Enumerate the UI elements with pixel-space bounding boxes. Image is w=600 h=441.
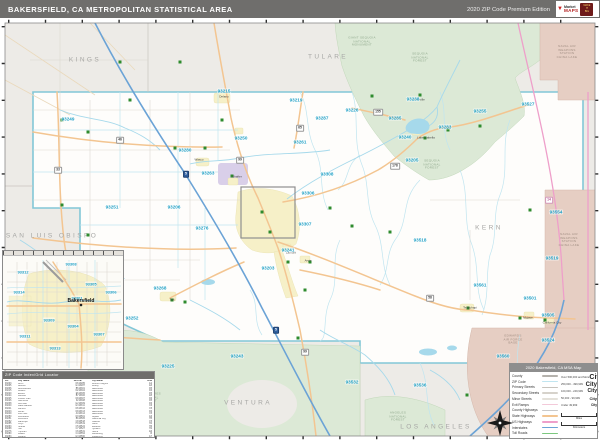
zip-label-93519: 93519 (545, 256, 559, 261)
zip-label-93527: 93527 (521, 102, 535, 107)
county-label-kings: KINGS (69, 57, 101, 64)
town-label-arvin: Arvin (305, 259, 312, 263)
legend-item-label: Primary Streets (512, 385, 542, 389)
area-label-1: SEQUOIA NATIONAL FOREST (411, 53, 428, 64)
miles-scale-label: Miles (561, 417, 597, 420)
zip-label-93249: 93249 (61, 117, 75, 122)
area-label-5: NAVAL AIR WEAPONS STATION CHINA LAKE (557, 45, 578, 59)
route-shield-99: 99 (301, 349, 309, 356)
inset-zip-label-93308: 93308 (65, 262, 77, 267)
town-marker (479, 125, 482, 128)
zip-label-93308: 93308 (320, 172, 334, 177)
scale-bars: Miles Kilometers (561, 411, 597, 430)
zip-index-column-1: ZIPCity NameGrid93203ArvinD693205Bodfish… (5, 380, 79, 438)
town-label-delano: Delano (219, 95, 229, 99)
town-marker (287, 261, 290, 264)
legend-item-swatch (542, 398, 558, 400)
legend-item-label: County (512, 374, 542, 378)
inset-zip-label-93313: 93313 (49, 346, 61, 351)
town-marker (87, 234, 90, 237)
town-marker (466, 394, 469, 397)
town-marker (129, 99, 132, 102)
legend-item-toll-roads: Toll Roads (512, 431, 560, 437)
legend-item-label: US Highways (512, 420, 542, 424)
area-label-4: ANGELES NATIONAL FOREST (389, 412, 406, 423)
zip-label-93241: 93241 (281, 248, 295, 253)
zip-label-93251: 93251 (105, 205, 119, 210)
town-marker (269, 231, 272, 234)
cell: G7 (144, 436, 152, 438)
town-marker (204, 147, 207, 150)
map-sheet: BAKERSFIELD, CA METROPOLITAN STATISTICAL… (0, 0, 600, 441)
legend-item-swatch (542, 387, 558, 389)
legend-item-swatch (542, 410, 558, 412)
route-shield-5: 5 (273, 327, 279, 334)
city-class-range: 50,000 - 99,999 (561, 397, 580, 400)
city-class-sample: City (589, 374, 598, 381)
zip-label-93276: 93276 (195, 226, 209, 231)
zip-index-table: ZIP Code Index/Grid Locator ZIPCity Name… (2, 371, 155, 438)
logo-badge: MAKE IT BIG (580, 3, 593, 16)
zip-label-93524: 93524 (541, 338, 555, 343)
zip-label-93240: 93240 (398, 135, 412, 140)
cell: Rosamond (92, 436, 145, 438)
zip-label-93560: 93560 (496, 354, 510, 359)
inset-labels-layer: 9330893312933149330593306933019330993304… (3, 251, 124, 370)
zip-label-93226: 93226 (345, 108, 359, 113)
route-shield-14: 14 (545, 197, 553, 204)
city-class-sample: City (589, 397, 597, 401)
zip-label-93280: 93280 (178, 148, 192, 153)
legend-item-swatch (542, 392, 558, 394)
legend-title: 2020 Bakersfield, CA MSA Map (510, 364, 597, 372)
county-label-san-luis-obispo: SAN LUIS OBISPO (6, 233, 98, 240)
town-label-lake-isabella: Lake Isabella (417, 136, 435, 140)
zip-index-column-2: ZIPCity NameGrid93285Wofford HeightsG293… (79, 380, 153, 438)
town-marker (184, 301, 187, 304)
legend-item-label: Interstates (512, 426, 542, 430)
zip-label-93255: 93255 (473, 109, 487, 114)
zip-label-93263: 93263 (201, 171, 215, 176)
zip-label-93215: 93215 (217, 89, 231, 94)
county-label-ventura: VENTURA (224, 400, 272, 407)
town-marker (529, 209, 532, 212)
zip-label-93283: 93283 (438, 125, 452, 130)
town-marker (87, 131, 90, 134)
legend-item-label: County Highways (512, 408, 542, 412)
inset-city-label: Bakersfield (68, 298, 95, 304)
legend-item-label: State Highways (512, 414, 542, 418)
inset-zip-label-93314: 93314 (13, 290, 25, 295)
legend-city-class-1: 250,000 - 499,999City (561, 381, 597, 388)
zip-label-93518: 93518 (413, 238, 427, 243)
route-shield-58: 58 (426, 295, 434, 302)
zip-label-93561: 93561 (473, 283, 487, 288)
zip-label-93307: 93307 (298, 222, 312, 227)
town-marker (174, 147, 177, 150)
town-marker (371, 95, 374, 98)
city-class-range: Over 500,000 and More (561, 376, 589, 379)
cell: 93283 (5, 436, 18, 438)
logo-text: Market MAPS (564, 5, 578, 13)
zip-label-93243: 93243 (230, 354, 244, 359)
town-label-california-city: California City (543, 321, 562, 325)
route-shield-155: 155 (373, 109, 383, 116)
city-class-sample: City (588, 389, 597, 394)
cell: G3 (71, 436, 79, 438)
town-label-mojave: Mojave (523, 316, 533, 320)
zip-label-93285: 93285 (388, 116, 402, 121)
legend-item-swatch (542, 415, 558, 417)
zip-label-93225: 93225 (161, 364, 175, 369)
map-canvas: KINGSTULAREKERNSAN LUIS OBISPOSANTA BARB… (0, 18, 600, 441)
route-shield-65: 65 (296, 125, 304, 132)
town-label-taft: Taft (170, 298, 175, 302)
route-shield-46: 46 (116, 137, 124, 144)
legend-city-class-0: Over 500,000 and MoreCity (561, 374, 597, 381)
county-label-los-angeles: LOS ANGELES (400, 424, 472, 431)
legend-city-class-4: Under 49,999City (561, 402, 597, 409)
edition-label: 2020 ZIP Code Premium Edition (467, 7, 550, 13)
legend-item-swatch (542, 433, 558, 435)
zip-label-93505: 93505 (541, 313, 555, 318)
town-marker (119, 61, 122, 64)
town-label-wasco: Wasco (194, 158, 203, 162)
zip-label-93205: 93205 (405, 158, 419, 163)
town-marker (179, 61, 182, 64)
zip-label-93536: 93536 (413, 383, 427, 388)
inset-zip-label-93311: 93311 (19, 334, 31, 339)
town-marker (389, 231, 392, 234)
kilometers-scale-bar (561, 423, 597, 426)
town-marker (351, 225, 354, 228)
legend-item-swatch (542, 381, 558, 383)
kilometers-scale-label: Kilometers (561, 426, 597, 429)
header-bar: BAKERSFIELD, CA METROPOLITAN STATISTICAL… (0, 0, 600, 18)
legend-city-classes: Over 500,000 and MoreCity250,000 - 499,9… (561, 374, 597, 409)
county-label-kern: KERN (475, 225, 503, 232)
legend-panel: 2020 Bakersfield, CA MSA Map CountyZIP C… (509, 363, 598, 439)
compass-rose (487, 410, 513, 436)
zip-label-93532: 93532 (345, 380, 359, 385)
map-title: BAKERSFIELD, CA METROPOLITAN STATISTICAL… (8, 5, 233, 14)
cell: 93560 (79, 436, 92, 438)
inset-zip-label-93304: 93304 (67, 324, 79, 329)
zip-label-93252: 93252 (125, 316, 139, 321)
town-marker (221, 119, 224, 122)
zip-label-93219: 93219 (289, 98, 303, 103)
town-marker (304, 289, 307, 292)
area-label-0: GIANT SEQUOIA NATIONAL MONUMENT (348, 37, 376, 48)
city-class-sample: City (586, 382, 597, 388)
town-marker (519, 317, 522, 320)
legend-item-swatch (542, 421, 558, 423)
miles-scale-bar (561, 414, 597, 417)
route-shield-99: 99 (236, 157, 244, 164)
city-class-sample: City (591, 404, 597, 407)
zip-label-93250: 93250 (234, 136, 248, 141)
legend-item-label: Toll Roads (512, 431, 542, 435)
inset-zip-label-93312: 93312 (17, 270, 29, 275)
city-class-range: 100,000 - 249,999 (561, 390, 583, 393)
inset-zip-label-93307: 93307 (93, 332, 105, 337)
area-label-6: NAVAL AIR WEAPONS STATION CHINA LAKE (559, 233, 580, 247)
route-shield-33: 33 (54, 167, 62, 174)
legend-item-label: ZIP Code (512, 380, 542, 384)
legend-item-label: Secondary Streets (512, 391, 542, 395)
town-marker (61, 204, 64, 207)
area-label-2: SEQUOIA NATIONAL FOREST (423, 160, 440, 171)
city-class-range: 250,000 - 499,999 (561, 383, 583, 386)
town-label-shafter: Shafter (232, 175, 242, 179)
legend-city-class-3: 50,000 - 99,999City (561, 395, 597, 402)
map-pin-icon: ▼ (557, 6, 563, 12)
legend-city-class-2: 100,000 - 249,999City (561, 388, 597, 395)
logo-maps: MAPS (564, 9, 578, 13)
zip-label-93238: 93238 (406, 97, 420, 102)
legend-item-label: Minor Streets (512, 397, 542, 401)
zip-label-93261: 93261 (293, 140, 307, 145)
zip-label-93554: 93554 (549, 210, 563, 215)
zip-index-row: 93560RosamondG7 (79, 436, 153, 438)
legend-item-swatch (542, 404, 558, 406)
zip-index-row: 93283WeldonG3 (5, 436, 79, 438)
town-label-tehachapi: Tehachapi (463, 306, 477, 310)
city-class-range: Under 49,999 (561, 404, 577, 407)
zip-label-93306: 93306 (301, 191, 315, 196)
zip-index-body: ZIPCity NameGrid93203ArvinD693205Bodfish… (3, 379, 154, 438)
inset-zip-label-93309: 93309 (43, 318, 55, 323)
route-shield-178: 178 (390, 163, 400, 170)
inset-zip-label-93305: 93305 (85, 282, 97, 287)
zip-index-title: ZIP Code Index/Grid Locator (3, 372, 154, 379)
zip-label-93287: 93287 (315, 116, 329, 121)
town-marker (261, 211, 264, 214)
county-label-tulare: TULARE (308, 54, 348, 61)
publisher-logo: ▼ Market MAPS MAKE IT BIG (556, 1, 599, 17)
town-marker (329, 207, 332, 210)
legend-item-label: Exit Ramps (512, 403, 542, 407)
town-marker (297, 337, 300, 340)
legend-road-items: CountyZIP CodePrimary StreetsSecondary S… (512, 373, 560, 436)
legend-item-swatch (542, 375, 558, 377)
zip-label-93203: 93203 (261, 266, 275, 271)
area-label-7: EDWARDS AIR FORCE BASE (503, 335, 522, 346)
inset-zip-label-93306: 93306 (105, 290, 117, 295)
cell: Weldon (18, 436, 71, 438)
route-shield-5: 5 (183, 171, 189, 178)
zip-label-93206: 93206 (167, 205, 181, 210)
zip-label-93268: 93268 (153, 286, 167, 291)
legend-item-swatch (542, 427, 558, 429)
inset-map: 9330893312933149330593306933019330993304… (2, 250, 124, 370)
zip-label-93501: 93501 (523, 296, 537, 301)
